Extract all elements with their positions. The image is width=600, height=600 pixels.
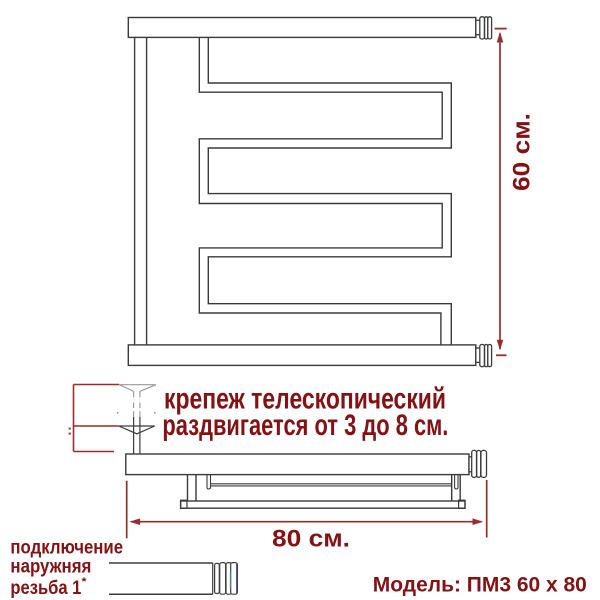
svg-text:подключение: подключение — [10, 537, 123, 558]
svg-text:наружняя: наружняя — [10, 557, 91, 578]
svg-text:раздвигается от 3 до 8 см.: раздвигается от 3 до 8 см. — [162, 409, 448, 442]
svg-text:60 см.: 60 см. — [508, 113, 535, 191]
svg-text:*: * — [82, 576, 88, 588]
svg-text:резьба 1: резьба 1 — [10, 578, 81, 599]
svg-text:80 см.: 80 см. — [272, 526, 350, 553]
svg-text:Модель: ПМ3 60 х 80: Модель: ПМ3 60 х 80 — [373, 573, 587, 597]
